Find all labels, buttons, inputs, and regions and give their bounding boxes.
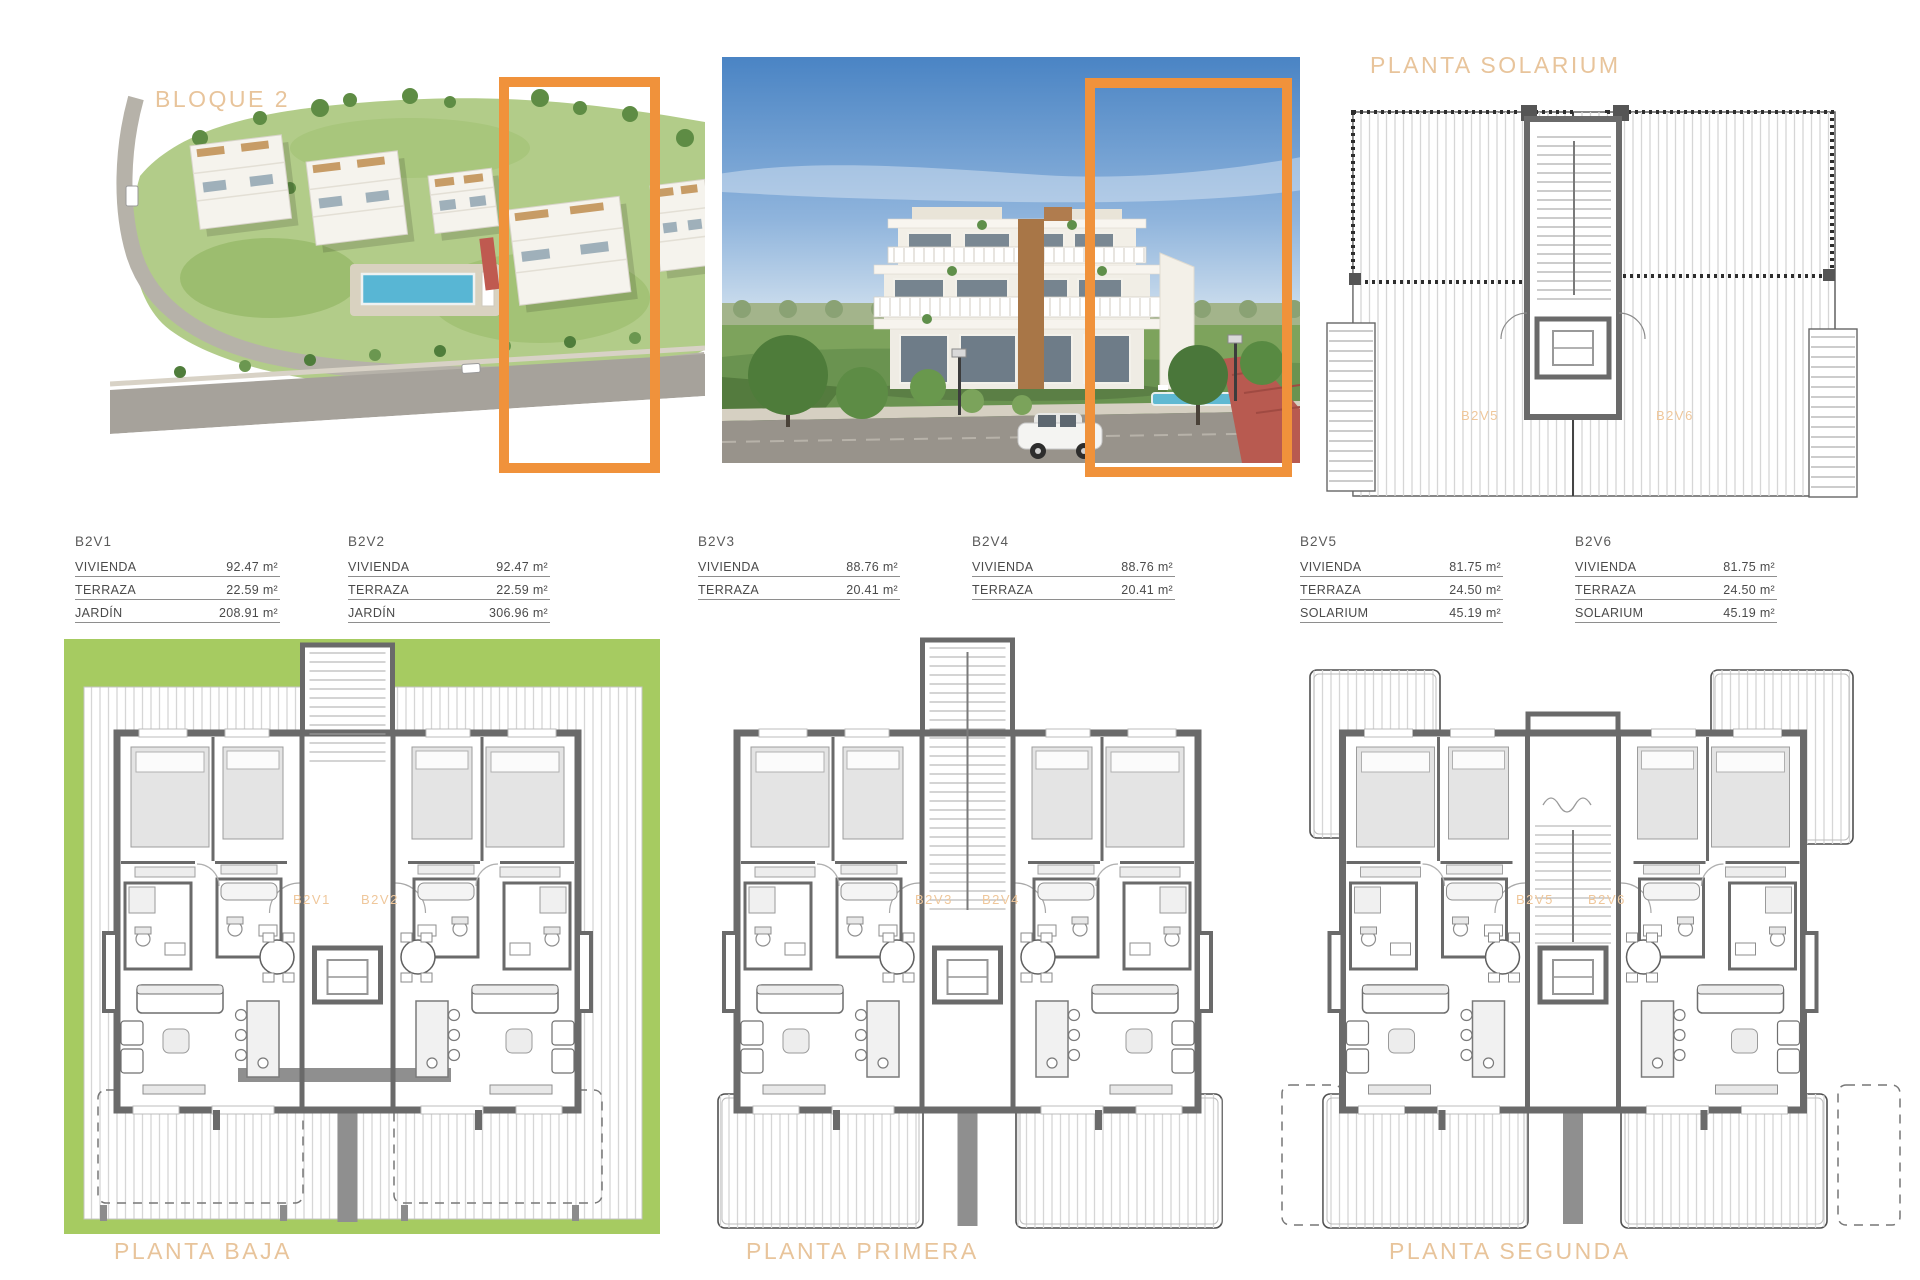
unit-label-baja-b2v1: B2V1 xyxy=(293,892,331,907)
first-floor-plan xyxy=(710,636,1270,1240)
area-label: TERRAZA xyxy=(75,583,136,597)
area-value: 24.50 m² xyxy=(1723,583,1775,597)
area-value: 24.50 m² xyxy=(1449,583,1501,597)
unit-table-b2v2: B2V2 VIVIENDA92.47 m² TERRAZA22.59 m² JA… xyxy=(348,534,550,623)
unit-table-b2v6: B2V6 VIVIENDA81.75 m² TERRAZA24.50 m² SO… xyxy=(1575,534,1777,623)
second-floor-plan xyxy=(1278,636,1902,1240)
area-value: 22.59 m² xyxy=(496,583,548,597)
area-row: TERRAZA20.41 m² xyxy=(698,577,900,600)
area-label: VIVIENDA xyxy=(698,560,760,574)
area-label: JARDÍN xyxy=(348,606,396,620)
area-row: VIVIENDA88.76 m² xyxy=(972,554,1175,577)
highlight-frame-aerial xyxy=(499,77,660,473)
area-row: VIVIENDA81.75 m² xyxy=(1575,554,1777,577)
area-row: VIVIENDA92.47 m² xyxy=(348,554,550,577)
area-row: VIVIENDA92.47 m² xyxy=(75,554,280,577)
area-label: VIVIENDA xyxy=(1300,560,1362,574)
area-label: SOLARIUM xyxy=(1575,606,1644,620)
plan-title-segunda: PLANTA SEGUNDA xyxy=(1389,1238,1631,1265)
area-value: 81.75 m² xyxy=(1723,560,1775,574)
unit-label-primera-b2v4: B2V4 xyxy=(982,892,1020,907)
unit-table-b2v1: B2V1 VIVIENDA92.47 m² TERRAZA22.59 m² JA… xyxy=(75,534,280,623)
area-row: TERRAZA22.59 m² xyxy=(348,577,550,600)
unit-id: B2V2 xyxy=(348,534,550,550)
area-value: 81.75 m² xyxy=(1449,560,1501,574)
area-value: 20.41 m² xyxy=(846,583,898,597)
area-row: VIVIENDA81.75 m² xyxy=(1300,554,1503,577)
area-label: TERRAZA xyxy=(972,583,1033,597)
unit-label-solarium-b2v5: B2V5 xyxy=(1461,408,1499,423)
area-row: TERRAZA24.50 m² xyxy=(1300,577,1503,600)
area-value: 92.47 m² xyxy=(226,560,278,574)
unit-label-primera-b2v3: B2V3 xyxy=(915,892,953,907)
area-label: TERRAZA xyxy=(1575,583,1636,597)
plan-title-baja: PLANTA BAJA xyxy=(114,1238,292,1265)
area-value: 20.41 m² xyxy=(1121,583,1173,597)
area-row: TERRAZA24.50 m² xyxy=(1575,577,1777,600)
unit-id: B2V6 xyxy=(1575,534,1777,550)
area-label: TERRAZA xyxy=(1300,583,1361,597)
area-value: 22.59 m² xyxy=(226,583,278,597)
area-row: SOLARIUM45.19 m² xyxy=(1300,600,1503,623)
area-label: VIVIENDA xyxy=(1575,560,1637,574)
area-value: 306.96 m² xyxy=(489,606,548,620)
unit-table-b2v3: B2V3 VIVIENDA88.76 m² TERRAZA20.41 m² xyxy=(698,534,900,600)
area-row: JARDÍN208.91 m² xyxy=(75,600,280,623)
area-label: TERRAZA xyxy=(698,583,759,597)
unit-id: B2V4 xyxy=(972,534,1175,550)
unit-label-segunda-b2v5: B2V5 xyxy=(1516,892,1554,907)
plan-title-solarium: PLANTA SOLARIUM xyxy=(1370,52,1621,79)
area-value: 208.91 m² xyxy=(219,606,278,620)
area-value: 45.19 m² xyxy=(1449,606,1501,620)
area-label: JARDÍN xyxy=(75,606,123,620)
highlight-frame-photo xyxy=(1085,78,1292,477)
unit-label-segunda-b2v6: B2V6 xyxy=(1588,892,1626,907)
unit-table-b2v4: B2V4 VIVIENDA88.76 m² TERRAZA20.41 m² xyxy=(972,534,1175,600)
plan-title-primera: PLANTA PRIMERA xyxy=(746,1238,979,1265)
area-value: 88.76 m² xyxy=(1121,560,1173,574)
area-row: JARDÍN306.96 m² xyxy=(348,600,550,623)
unit-id: B2V1 xyxy=(75,534,280,550)
area-label: VIVIENDA xyxy=(75,560,137,574)
area-row: TERRAZA20.41 m² xyxy=(972,577,1175,600)
unit-label-solarium-b2v6: B2V6 xyxy=(1656,408,1694,423)
area-value: 88.76 m² xyxy=(846,560,898,574)
unit-label-baja-b2v2: B2V2 xyxy=(361,892,399,907)
brochure-sheet: BLOQUE 2 PLANTA SOLARIUM B2V5 B2V6 B2V1 … xyxy=(0,0,1920,1280)
area-row: TERRAZA22.59 m² xyxy=(75,577,280,600)
page-title-bloque: BLOQUE 2 xyxy=(155,86,290,113)
unit-id: B2V3 xyxy=(698,534,900,550)
area-row: VIVIENDA88.76 m² xyxy=(698,554,900,577)
area-label: VIVIENDA xyxy=(972,560,1034,574)
area-value: 45.19 m² xyxy=(1723,606,1775,620)
unit-table-b2v5: B2V5 VIVIENDA81.75 m² TERRAZA24.50 m² SO… xyxy=(1300,534,1503,623)
solarium-floor-plan xyxy=(1325,103,1860,508)
area-label: TERRAZA xyxy=(348,583,409,597)
unit-id: B2V5 xyxy=(1300,534,1503,550)
area-row: SOLARIUM45.19 m² xyxy=(1575,600,1777,623)
area-value: 92.47 m² xyxy=(496,560,548,574)
area-label: VIVIENDA xyxy=(348,560,410,574)
area-label: SOLARIUM xyxy=(1300,606,1369,620)
ground-floor-plan xyxy=(64,639,660,1235)
